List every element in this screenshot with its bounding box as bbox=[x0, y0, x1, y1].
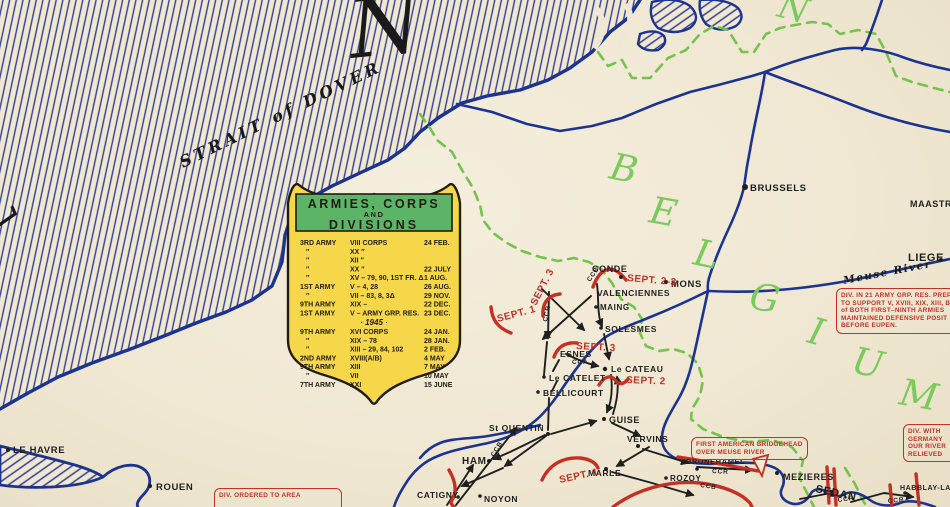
legend-cell: XIX – bbox=[350, 302, 367, 309]
sept-1-label: SEPT. 1 bbox=[496, 304, 537, 325]
callout-line: of BOTH FIRST–NINTH ARMIES bbox=[841, 307, 950, 315]
sept-3-label: SEPT. 3 bbox=[529, 267, 557, 307]
legend-cell: XIX – 78 bbox=[350, 338, 377, 345]
movement-line bbox=[543, 296, 591, 339]
unit-ccb: CCB bbox=[700, 482, 717, 491]
legend-cell: XX ″ bbox=[350, 266, 365, 273]
town-dot bbox=[602, 417, 606, 421]
estuary-islands bbox=[638, 0, 742, 50]
island bbox=[700, 0, 742, 30]
seine-river bbox=[103, 465, 150, 507]
callout-germany-relieved: DIV. WITH GERMANY OUR RIVER RELIEVED bbox=[903, 424, 950, 462]
river-corner bbox=[862, 0, 882, 50]
legend-cell: 22 DEC. bbox=[424, 302, 451, 309]
legend-cell: 23 DEC. bbox=[424, 310, 451, 317]
place-st-quentin: St QUENTIN bbox=[489, 423, 544, 433]
legend-cell: XV – 79, 90, 1ST FR. Δ bbox=[350, 275, 424, 282]
legend-cell: 7 MAY bbox=[424, 364, 445, 371]
map-canvas: N L STRAIT of DOVER Meuse River B E L G … bbox=[0, 0, 950, 507]
town-dot bbox=[619, 275, 623, 279]
river-ne bbox=[765, 48, 950, 72]
sept-1-label: SEPT. 1 bbox=[558, 467, 599, 486]
legend-cell: 22 JULY bbox=[424, 266, 451, 273]
legend-cell: 2 FEB. bbox=[424, 347, 446, 354]
town-dot bbox=[6, 448, 10, 452]
place-habblay: HABBLAY-LA bbox=[900, 485, 950, 492]
movement-line bbox=[551, 421, 596, 434]
town-dot bbox=[664, 476, 668, 480]
historical-map: N L STRAIT of DOVER Meuse River B E L G … bbox=[0, 0, 950, 507]
belgium-letter: I bbox=[803, 309, 831, 355]
callout-line: GERMANY bbox=[908, 436, 950, 444]
place-noyon: NOYON bbox=[484, 494, 518, 504]
town-dot bbox=[695, 467, 699, 471]
callout-line: MAINTAINED DEFENSIVE POSIT bbox=[841, 315, 950, 323]
sept-3-label: SEPT. 3 bbox=[576, 341, 616, 354]
belgium-letter: U bbox=[848, 339, 889, 388]
place-bellicourt: BELLICOURT bbox=[543, 388, 604, 398]
unit-ccr: CCR bbox=[712, 468, 729, 476]
legend-cell: XVI CORPS bbox=[350, 329, 388, 336]
legend-cell: XX ″ bbox=[350, 249, 365, 256]
place-vervins: VERVINS bbox=[627, 434, 668, 444]
town-dot bbox=[536, 390, 540, 394]
unit-cca: CCA bbox=[572, 359, 588, 366]
legend-cell: XIII – 29, 84, 102 bbox=[350, 347, 403, 354]
belgium-letter: G bbox=[746, 275, 783, 322]
sept-2-label: SEPT. 2 bbox=[626, 375, 666, 387]
belgium-letter: M bbox=[895, 370, 942, 419]
callout-line: DIV. ORDERED TO AREA bbox=[219, 492, 337, 500]
place-valenciennes: VALENCIENNES bbox=[597, 288, 670, 298]
legend-year-divider: · 1945 · bbox=[360, 318, 388, 327]
town-dot bbox=[148, 484, 152, 488]
front-line-catigny bbox=[449, 470, 455, 507]
legend-cell: VII bbox=[350, 373, 359, 380]
legend-title-line1: ARMIES, CORPS bbox=[308, 197, 441, 211]
place-maastricht: MAASTRICHT bbox=[910, 199, 950, 209]
callout-line: DIV. IN 21 ARMY GRP. RES. PREP bbox=[841, 292, 950, 300]
place-guise: GUISE bbox=[609, 415, 640, 425]
place-catigny: CATIGNY bbox=[417, 490, 459, 500]
place-le-cateau: Le CATEAU bbox=[611, 364, 663, 374]
belgium-label: B E L G I U M N bbox=[605, 0, 942, 420]
place-le-catelet: Le CATELET bbox=[549, 373, 606, 383]
callout-line: FIRST AMERICAN BRIDGEHEAD bbox=[696, 441, 803, 449]
town-dot bbox=[775, 471, 779, 475]
legend-cell: ″ bbox=[306, 373, 310, 380]
island bbox=[651, 0, 696, 32]
island bbox=[638, 31, 665, 50]
legend-cell: 9TH ARMY bbox=[300, 329, 336, 336]
legend-cell: 4 MAY bbox=[424, 355, 445, 362]
belgium-letter: L bbox=[689, 231, 723, 278]
town-dot bbox=[636, 444, 640, 448]
callout-line: RELIEVED bbox=[908, 451, 950, 459]
legend-cell: XXI bbox=[350, 382, 361, 389]
legend-cell: 29 NOV. bbox=[424, 293, 450, 300]
legend-cell: V – ARMY GRP. RES. bbox=[350, 310, 419, 317]
legend-cell: 3RD ARMY bbox=[300, 240, 337, 247]
callout-line: OUR RIVER bbox=[908, 443, 950, 451]
legend-cell: 1ST ARMY bbox=[300, 310, 335, 317]
legend-cell: 26 AUG. bbox=[424, 284, 451, 291]
legend-cell: 9TH ARMY bbox=[300, 364, 336, 371]
place-le-havre: LE HAVRE bbox=[13, 445, 65, 456]
legend-cell: XIII bbox=[350, 364, 361, 371]
callout-div-ordered: DIV. ORDERED TO AREA bbox=[214, 488, 342, 507]
place-maing: MAING bbox=[600, 303, 630, 312]
legend-cell: 10 MAY bbox=[424, 373, 449, 380]
callout-line: BEFORE EUPEN. bbox=[841, 322, 950, 330]
town-dot bbox=[546, 432, 550, 436]
legend-cell: VII – 83, 8, 3Δ bbox=[350, 293, 395, 300]
legend-cell: 7TH ARMY bbox=[300, 382, 336, 389]
place-rouen: ROUEN bbox=[156, 482, 193, 493]
movement-line bbox=[544, 342, 559, 430]
callout-bridgehead: FIRST AMERICAN BRIDGEHEAD OVER MEUSE RIV… bbox=[691, 437, 808, 460]
legend-cell: XVIII(A/B) bbox=[350, 355, 382, 362]
town-dot bbox=[478, 494, 482, 498]
sept-2-3-label: SEPT. 2-3 bbox=[627, 273, 677, 288]
place-brussels: BRUSSELS bbox=[750, 183, 807, 194]
legend-title-line3: DIVISIONS bbox=[329, 218, 419, 232]
callout-line: DIV. WITH bbox=[908, 428, 950, 436]
movement-line bbox=[607, 375, 612, 412]
legend-shield: ARMIES, CORPS AND DIVISIONS 3RD ARMYVIII… bbox=[288, 184, 460, 404]
place-solesmes: SOLESMES bbox=[605, 324, 657, 334]
legend-cell: 24 FEB. bbox=[424, 240, 450, 247]
callout-line: TO SUPPORT V, XVIII, XIX, XIII, BR bbox=[841, 300, 950, 308]
town-dot bbox=[603, 367, 607, 371]
town-dot bbox=[594, 305, 598, 309]
place-liege: LIEGE. bbox=[908, 252, 948, 264]
callout-army-group-reserve: DIV. IN 21 ARMY GRP. RES. PREP TO SUPPOR… bbox=[836, 288, 950, 334]
belgium-letter: B bbox=[605, 145, 642, 193]
legend-cell: 9TH ARMY bbox=[300, 302, 336, 309]
legend-cell: 28 JAN. bbox=[424, 338, 450, 345]
legend-cell: XII ″ bbox=[350, 258, 365, 265]
legend-cell: 15 JUNE bbox=[424, 382, 453, 389]
legend-cell: VIII CORPS bbox=[350, 240, 388, 247]
place-mezieres: MEZIERES bbox=[783, 472, 834, 482]
belgium-letter: E bbox=[645, 188, 680, 235]
place-ham: HAM bbox=[462, 456, 487, 467]
river-se bbox=[765, 72, 950, 132]
legend-cell: 1 AUG. bbox=[424, 275, 447, 282]
town-dot bbox=[742, 184, 748, 190]
town-dot bbox=[487, 459, 491, 463]
legend-cell: V – 4, 28 bbox=[350, 284, 378, 291]
legend-cell: 24 JAN. bbox=[424, 329, 450, 336]
town-dot bbox=[599, 326, 603, 330]
unit-ccr: CCR bbox=[888, 497, 905, 505]
town-dot bbox=[542, 375, 546, 379]
front-line-south bbox=[613, 482, 752, 507]
place-rozoy: ROZOY bbox=[670, 474, 702, 483]
callout-line: OVER MEUSE RIVER bbox=[696, 449, 803, 457]
legend-cell: 1ST ARMY bbox=[300, 284, 335, 291]
legend-cell: 2ND ARMY bbox=[300, 355, 337, 362]
